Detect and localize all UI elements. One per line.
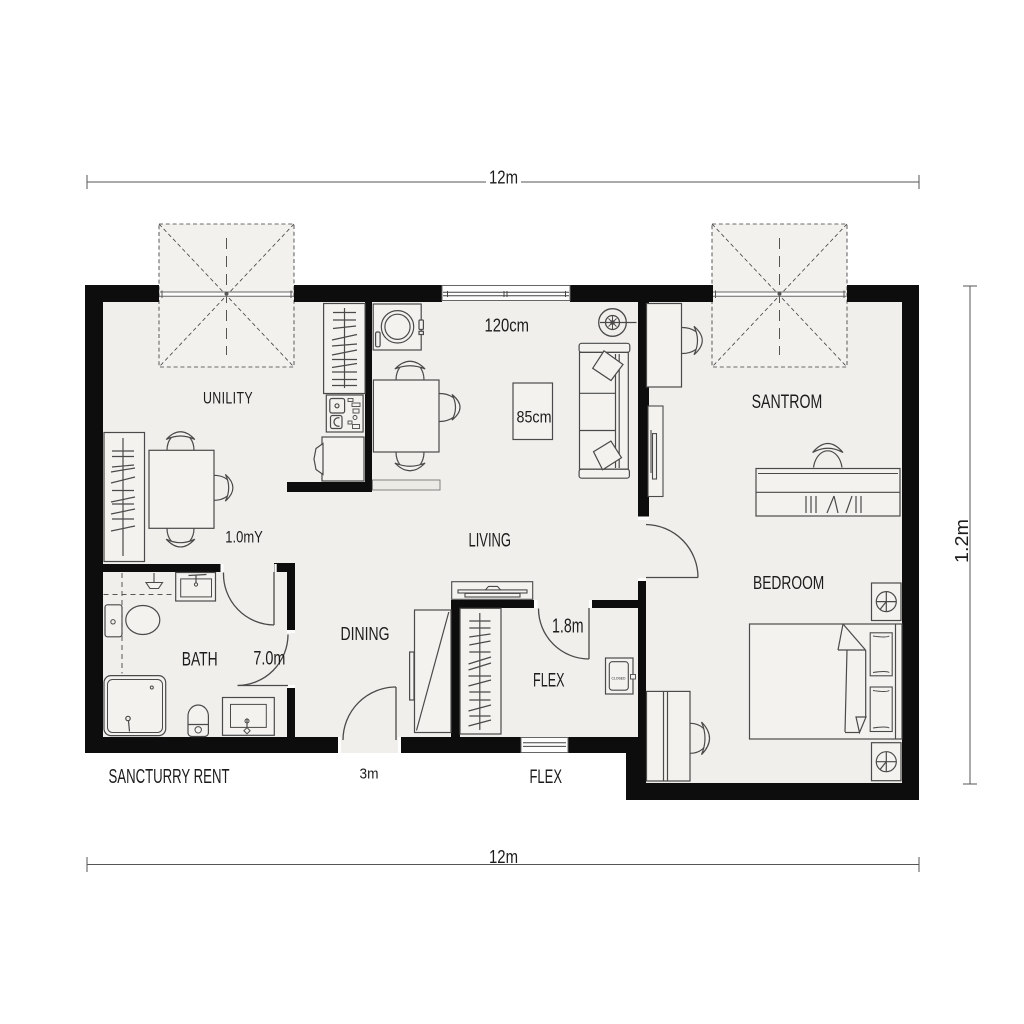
svg-text:UNILITY: UNILITY — [203, 389, 253, 408]
svg-text:SANCTURRY RENT: SANCTURRY RENT — [109, 766, 230, 788]
svg-text:12m: 12m — [489, 847, 518, 867]
svg-text:1.0mY: 1.0mY — [225, 529, 262, 547]
svg-text:7.0m: 7.0m — [253, 649, 285, 670]
svg-text:SANTROM: SANTROM — [752, 392, 823, 413]
svg-text:LIVING: LIVING — [469, 531, 512, 552]
svg-text:1.2m: 1.2m — [952, 519, 972, 563]
svg-text:DINING: DINING — [341, 624, 390, 644]
svg-text:BEDROOM: BEDROOM — [753, 572, 824, 593]
svg-text:1.8m: 1.8m — [552, 616, 584, 638]
svg-text:85cm: 85cm — [517, 408, 552, 427]
svg-text:BATH: BATH — [182, 650, 218, 671]
svg-text:CLOSED: CLOSED — [612, 677, 626, 681]
svg-text:12m: 12m — [489, 168, 518, 188]
svg-text:FLEX: FLEX — [530, 767, 563, 788]
svg-text:120cm: 120cm — [485, 316, 530, 336]
svg-text:FLEX: FLEX — [533, 671, 565, 692]
svg-text:3m: 3m — [360, 766, 379, 783]
